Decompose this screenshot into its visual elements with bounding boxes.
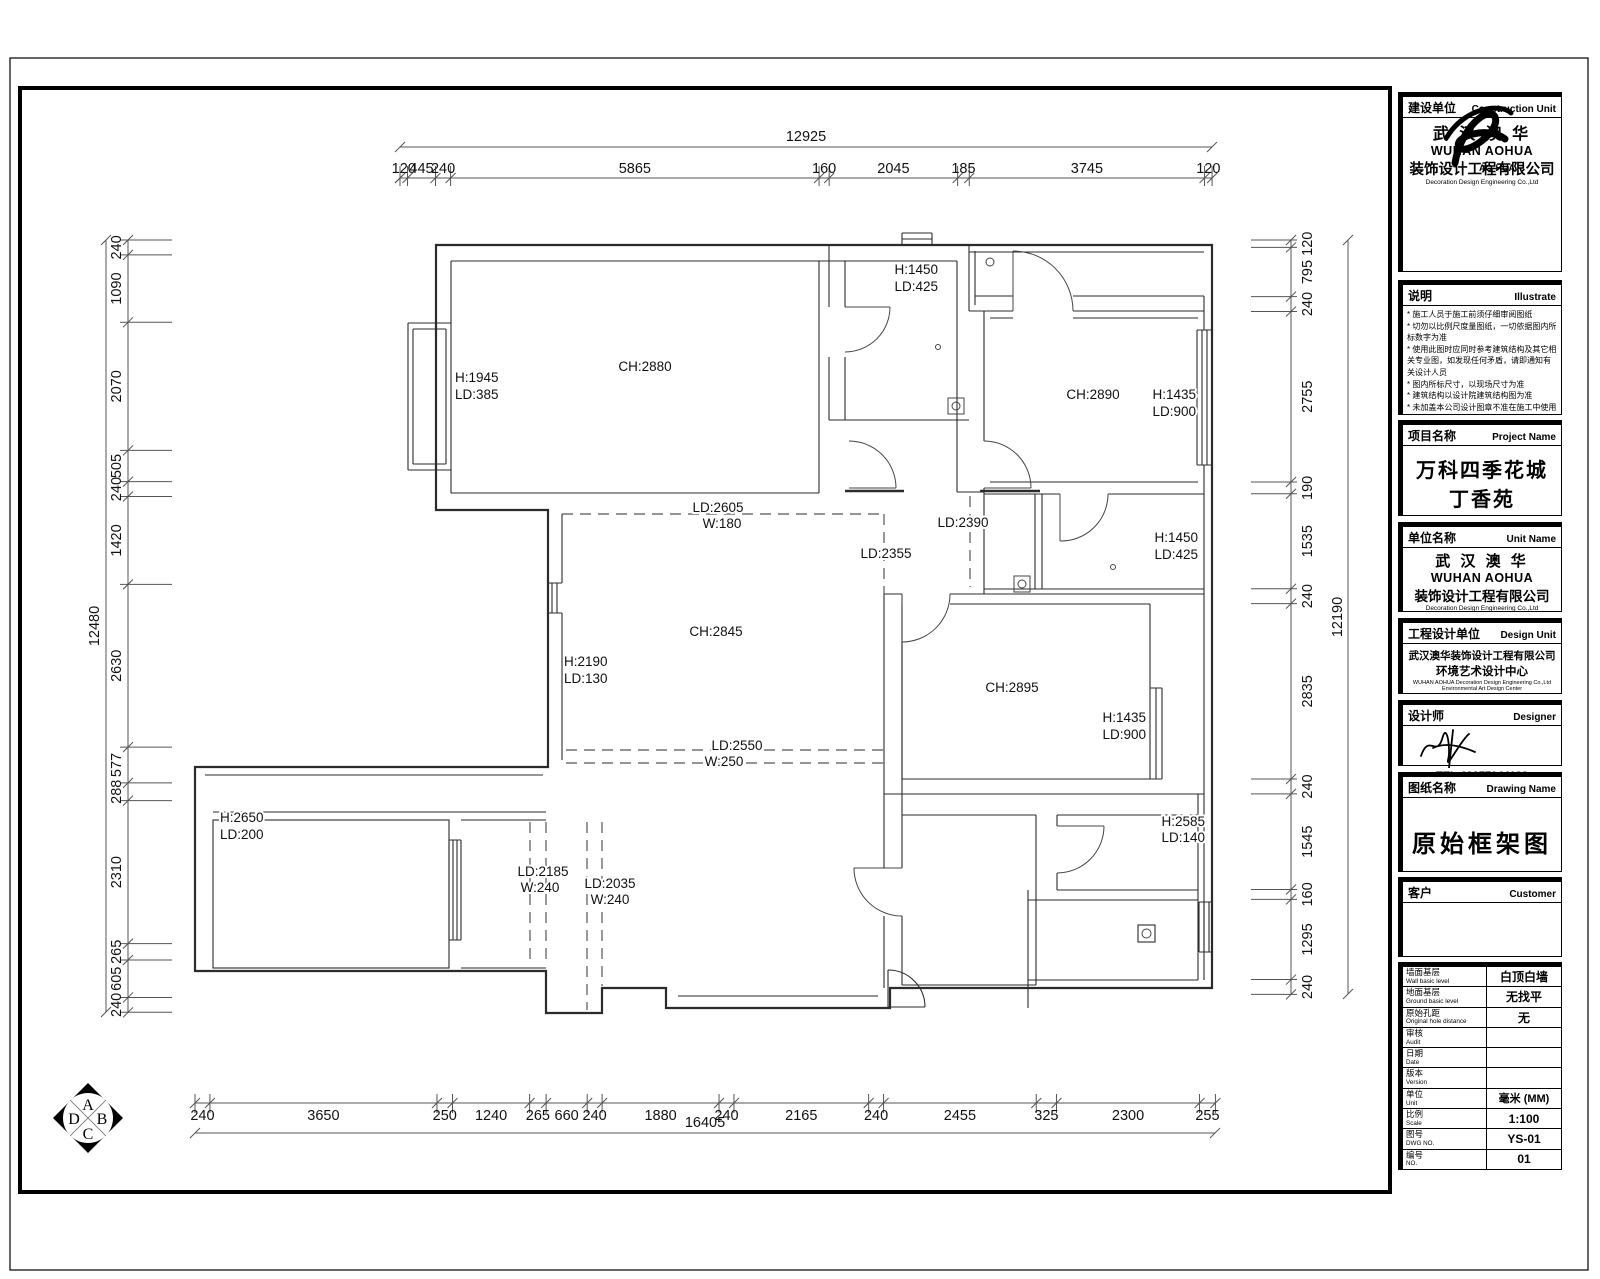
dimension-label: 12190: [1330, 597, 1346, 637]
illustrate-label-cn: 说明: [1408, 287, 1432, 304]
dimension-label: 240: [109, 477, 125, 501]
illustrate-note: 施工人员于施工前须仔细审阅图纸: [1407, 309, 1557, 321]
info-row-value: 白顶白墙: [1487, 967, 1561, 986]
compass-letter: B: [97, 1111, 108, 1128]
room-label: CH:2890: [1066, 387, 1119, 402]
info-row-value: [1487, 1068, 1561, 1087]
info-row-label-en: Unit: [1406, 1100, 1486, 1107]
room-label: LD:385: [455, 387, 499, 402]
dimension-label: 1420: [109, 524, 125, 556]
walls: [195, 233, 1212, 1013]
compass-letter: A: [82, 1097, 94, 1114]
dimension-label: 3745: [1071, 161, 1103, 177]
dimension-label: 660: [555, 1108, 579, 1124]
section-illustrate: 说明 Illustrate 施工人员于施工前须仔细审阅图纸切勿以比例尺度量图纸，…: [1398, 280, 1562, 415]
info-row: 版本Version: [1403, 1068, 1561, 1088]
room-label: LD:900: [1152, 404, 1196, 419]
sheet-frame: [10, 58, 1588, 1270]
room-label: LD:2390: [937, 515, 988, 530]
room-label: W:180: [703, 516, 742, 531]
designer-label-en: Designer: [1513, 712, 1556, 723]
project-name-label-en: Project Name: [1492, 432, 1556, 443]
room-label: H:2585: [1161, 814, 1205, 829]
info-row-label-cn: 比例: [1406, 1110, 1486, 1120]
info-row-label-en: DWG NO.: [1406, 1140, 1486, 1147]
compass-letter: C: [83, 1126, 94, 1143]
section-designer: 设计师 Designer TEL:13277044133: [1398, 700, 1562, 766]
dimension-label: 120: [1300, 232, 1316, 256]
info-row-label-en: Wall basic level: [1406, 978, 1486, 985]
dimension-label: 265: [526, 1108, 550, 1124]
room-label: LD:200: [220, 827, 264, 842]
unit-name-label-en: Unit Name: [1507, 534, 1556, 545]
info-row-value: 1:100: [1487, 1109, 1561, 1128]
unit-company-en2: Decoration Design Engineering Co.,Ltd: [1403, 605, 1561, 612]
dimension-label: 1295: [1300, 923, 1316, 955]
info-row-label-cn: 单位: [1406, 1090, 1486, 1100]
dimension-label: 577: [109, 753, 125, 777]
room-label: W:240: [591, 892, 630, 907]
section-project-name: 项目名称 Project Name 万科四季花城 丁香苑: [1398, 420, 1562, 516]
compass-icon: ABCD: [53, 1083, 123, 1153]
room-label: CH:2895: [985, 680, 1038, 695]
dimension-label: 160: [1300, 882, 1316, 906]
floor-plan-drawing: ABCD 12044524058651602045185374512024036…: [0, 0, 1600, 1279]
section-unit-name: 单位名称 Unit Name 武 汉 澳 华 WUHAN AOHUA 装饰设计工…: [1398, 522, 1562, 612]
room-label: LD:2035: [584, 876, 635, 891]
drawing-name-label-cn: 图纸名称: [1408, 779, 1456, 796]
design-unit-line1: 武汉澳华装饰设计工程有限公司: [1403, 648, 1561, 663]
info-row-value: YS-01: [1487, 1129, 1561, 1148]
room-label: LD:2605: [692, 500, 743, 515]
dimension-label: 255: [1195, 1108, 1219, 1124]
dimension-label: 240: [1300, 975, 1316, 999]
fixtures: [936, 258, 1152, 938]
dimension-label: 190: [1300, 476, 1316, 500]
info-row-value: 毫米 (MM): [1487, 1089, 1561, 1108]
info-row: 墙面基层Wall basic level白顶白墙: [1403, 967, 1561, 987]
illustrate-note: 建筑结构以设计院建筑结构图为准: [1407, 390, 1557, 402]
design-unit-label-cn: 工程设计单位: [1408, 625, 1480, 642]
unit-company-en: WUHAN AOHUA: [1403, 571, 1561, 585]
project-name-line2: 丁香苑: [1403, 483, 1561, 512]
dimension-label: 2835: [1300, 675, 1316, 707]
customer-label-en: Customer: [1509, 889, 1556, 900]
illustrate-note: 切勿以比例尺度量图纸，一切依据图内所标数字为准: [1407, 321, 1557, 344]
section-design-unit: 工程设计单位 Design Unit 武汉澳华装饰设计工程有限公司 环境艺术设计…: [1398, 618, 1562, 694]
info-row-label-en: Ground basic level: [1406, 998, 1486, 1005]
info-row-value: 01: [1487, 1150, 1561, 1169]
dimension-label: 3650: [307, 1108, 339, 1124]
dimension-label: 265: [109, 940, 125, 964]
info-row: 地面基层Ground basic level无找平: [1403, 987, 1561, 1007]
dimension-label: 12480: [87, 606, 103, 646]
dimension-label: 240: [864, 1108, 888, 1124]
info-row-label-en: NO.: [1406, 1160, 1486, 1167]
dimension-label: 505: [109, 454, 125, 478]
info-row-label-cn: 编号: [1406, 1151, 1486, 1161]
illustrate-notes: 施工人员于施工前须仔细审阅图纸切勿以比例尺度量图纸，一切依据图内所标数字为准使用…: [1403, 306, 1561, 416]
dimension-label: 2165: [785, 1108, 817, 1124]
dimension-label: 1535: [1300, 525, 1316, 557]
dimension-label: 240: [109, 993, 125, 1017]
info-row-label-cn: 原始孔距: [1406, 1009, 1486, 1019]
drawing-sheet: ABCD 12044524058651602045185374512024036…: [0, 0, 1600, 1279]
dimension-label: 2045: [877, 161, 909, 177]
room-label: LD:425: [894, 279, 938, 294]
dimension-label: 2755: [1300, 381, 1316, 413]
info-table-rows: 墙面基层Wall basic level白顶白墙地面基层Ground basic…: [1403, 967, 1561, 1169]
compass-letter: D: [68, 1111, 80, 1128]
room-label: LD:130: [564, 671, 608, 686]
dimension-label: 240: [190, 1108, 214, 1124]
dimension-label: 120: [1196, 161, 1220, 177]
info-row-label-en: Version: [1406, 1079, 1486, 1086]
project-name-label-cn: 项目名称: [1408, 427, 1456, 444]
dimension-label: 2310: [109, 856, 125, 888]
illustrate-note: 未加盖本公司设计图章不准在施工中使用: [1407, 402, 1557, 414]
room-label: LD:900: [1102, 727, 1146, 742]
dimension-label: 240: [109, 235, 125, 259]
info-row-value: 无找平: [1487, 987, 1561, 1006]
designer-label-cn: 设计师: [1408, 707, 1444, 724]
drawing-name-label-en: Drawing Name: [1487, 784, 1556, 795]
info-row: 原始孔距Original hole distance无: [1403, 1008, 1561, 1028]
illustrate-note: 使用此图时应同时参考建筑结构及其它相关专业图，如发现任何矛盾，请即通知有关设计人…: [1407, 344, 1557, 379]
unit-company-cn: 武 汉 澳 华: [1403, 550, 1561, 571]
room-label: W:250: [705, 754, 744, 769]
project-name-line1: 万科四季花城: [1403, 454, 1561, 483]
customer-label-cn: 客户: [1408, 884, 1432, 901]
info-row-label-cn: 版本: [1406, 1069, 1486, 1079]
dimension-label: 2070: [109, 370, 125, 402]
room-label: W:240: [521, 880, 560, 895]
info-row: 单位Unit毫米 (MM): [1403, 1089, 1561, 1109]
info-row-label-en: Scale: [1406, 1120, 1486, 1127]
dimension-label: 1090: [109, 272, 125, 304]
info-row: 比例Scale1:100: [1403, 1109, 1561, 1129]
design-unit-label-en: Design Unit: [1500, 630, 1556, 641]
dimension-label: 795: [1300, 260, 1316, 284]
unit-company-cn2: 装饰设计工程有限公司: [1403, 585, 1561, 605]
dimension-label: 288: [109, 780, 125, 804]
info-row-label-cn: 图号: [1406, 1130, 1486, 1140]
info-row: 编号NO.01: [1403, 1150, 1561, 1169]
room-label: H:2650: [220, 810, 264, 825]
room-label: H:1945: [455, 370, 499, 385]
dimension-label: 240: [583, 1108, 607, 1124]
info-row-label-en: Audit: [1406, 1039, 1486, 1046]
dimension-label: 5865: [619, 161, 651, 177]
dimension-label: 1240: [475, 1108, 507, 1124]
room-label: LD:2550: [711, 738, 762, 753]
dimension-label: 605: [109, 967, 125, 991]
info-row: 日期Date: [1403, 1048, 1561, 1068]
room-label: H:1450: [1154, 530, 1198, 545]
design-unit-line2: 环境艺术设计中心: [1403, 663, 1561, 679]
dimension-label: 185: [951, 161, 975, 177]
section-customer: 客户 Customer: [1398, 877, 1562, 957]
drawing-name-value: 原始框架图: [1403, 824, 1561, 859]
info-row-label-en: Original hole distance: [1406, 1018, 1486, 1025]
room-label: CH:2880: [618, 359, 671, 374]
section-construction-unit: 建设单位 Construction Unit AO-HUA 武 汉 澳 华 WU…: [1398, 92, 1562, 272]
dimension-label: 2455: [944, 1108, 976, 1124]
design-unit-line4: Environmental Art Design Center: [1403, 686, 1561, 692]
room-label: H:1450: [894, 262, 938, 277]
section-drawing-name: 图纸名称 Drawing Name 原始框架图: [1398, 772, 1562, 872]
dimension-label: 240: [1300, 584, 1316, 608]
info-row-value: [1487, 1048, 1561, 1067]
dimension-label: 1880: [644, 1108, 676, 1124]
room-labels: CH:2880H:1945LD:385H:1450LD:425CH:2890H:…: [220, 262, 1205, 907]
room-label: LD:140: [1161, 830, 1205, 845]
room-label: CH:2845: [689, 624, 742, 639]
dashed-openings: [530, 496, 970, 1010]
dimension-label: 250: [433, 1108, 457, 1124]
dimension-label: 2300: [1112, 1108, 1144, 1124]
designer-signature: [1403, 726, 1561, 770]
room-label: LD:425: [1154, 547, 1198, 562]
info-row: 审核Audit: [1403, 1028, 1561, 1048]
company-name-en2: Decoration Design Engineering Co.,Ltd: [1403, 179, 1561, 186]
info-row-label-cn: 地面基层: [1406, 988, 1486, 998]
dimension-label: 240: [1300, 774, 1316, 798]
dimension-label: 12925: [786, 129, 826, 145]
dimension-label: 1545: [1300, 826, 1316, 858]
info-row-value: 无: [1487, 1008, 1561, 1027]
room-label: LD:2185: [517, 864, 568, 879]
room-label: H:1435: [1102, 710, 1146, 725]
room-label: H:2190: [564, 654, 608, 669]
illustrate-note: 图内所标尺寸，以现场尺寸为准: [1407, 379, 1557, 391]
dimension-label: 16405: [685, 1115, 725, 1131]
info-row-label-cn: 日期: [1406, 1049, 1486, 1059]
info-row: 图号DWG NO.YS-01: [1403, 1129, 1561, 1149]
dimension-label: 325: [1034, 1108, 1058, 1124]
info-row-value: [1487, 1028, 1561, 1047]
dimension-label: 160: [812, 161, 836, 177]
info-row-label-cn: 审核: [1406, 1029, 1486, 1039]
logo-text: AO-HUA: [1479, 163, 1515, 173]
illustrate-label-en: Illustrate: [1514, 292, 1556, 303]
section-info-table: 墙面基层Wall basic level白顶白墙地面基层Ground basic…: [1398, 962, 1562, 1170]
info-row-label-cn: 墙面基层: [1406, 968, 1486, 978]
unit-name-label-cn: 单位名称: [1408, 529, 1456, 546]
title-block: 建设单位 Construction Unit AO-HUA 武 汉 澳 华 WU…: [1398, 88, 1562, 1178]
room-label: H:1435: [1152, 387, 1196, 402]
dimension-label: 240: [431, 161, 455, 177]
room-label: LD:2355: [860, 546, 911, 561]
dimension-label: 2630: [109, 650, 125, 682]
info-row-label-en: Date: [1406, 1059, 1486, 1066]
dimension-label: 240: [1300, 292, 1316, 316]
